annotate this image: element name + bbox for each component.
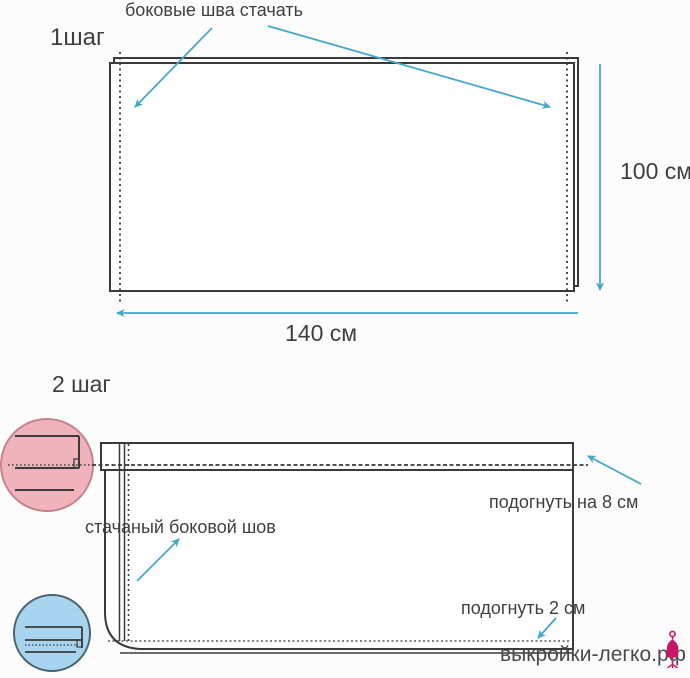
fold-bottom-label: подогнуть 2 см xyxy=(461,598,585,618)
step2-panel: 2 шаг подогнуть на 8 см ст xyxy=(1,371,641,671)
step2-heading: 2 шаг xyxy=(52,371,111,397)
top-fold-band xyxy=(101,443,573,470)
top-fold-detail-circle xyxy=(1,419,93,511)
side-seams-label: боковые шва стачать xyxy=(125,0,303,20)
step1-panel: 1шаг боковые шва стачать 100 см 140 см xyxy=(50,0,690,346)
fabric-front-layer xyxy=(110,63,574,291)
fold-top-label: подогнуть на 8 см xyxy=(489,492,638,512)
bottom-fold-detail-circle xyxy=(14,595,90,671)
height-dimension-label: 100 см xyxy=(620,158,690,184)
width-dimension-label: 140 см xyxy=(285,320,357,346)
side-seam-annotation: стачаный боковой шов xyxy=(85,517,276,537)
blue-circle xyxy=(14,595,90,671)
arrow-pointer-icon xyxy=(588,456,641,484)
sewing-pattern-diagram: 1шаг боковые шва стачать 100 см 140 см 2… xyxy=(0,0,690,673)
diagram-canvas: 1шаг боковые шва стачать 100 см 140 см 2… xyxy=(0,0,690,673)
step1-heading: 1шаг xyxy=(50,24,105,51)
watermark-site-label: выкройки-легко.рф xyxy=(500,643,686,666)
